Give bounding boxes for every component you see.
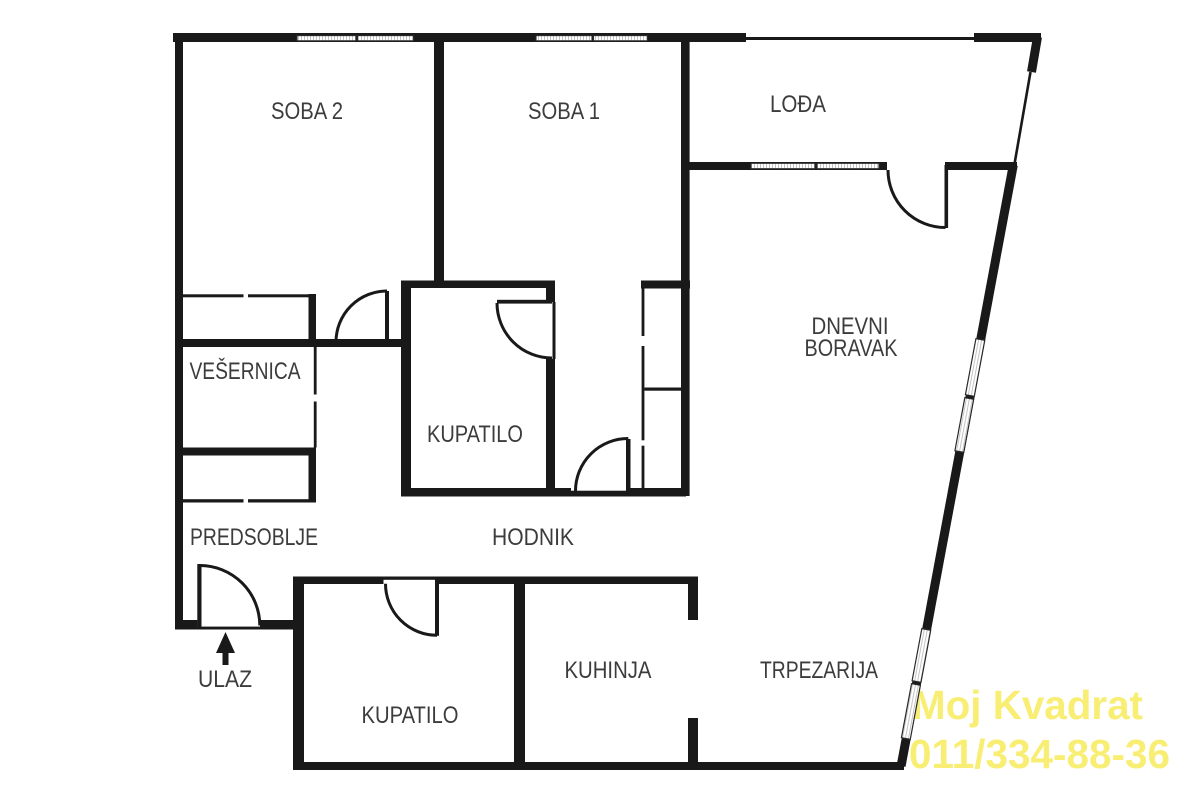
svg-text:SOBA 1: SOBA 1 xyxy=(528,98,600,125)
svg-text:BORAVAK: BORAVAK xyxy=(805,335,898,362)
svg-text:011/334-88-36: 011/334-88-36 xyxy=(909,731,1170,777)
svg-text:LOĐA: LOĐA xyxy=(770,91,826,118)
svg-text:PREDSOBLJE: PREDSOBLJE xyxy=(190,524,318,551)
svg-text:Moj Kvadrat: Moj Kvadrat xyxy=(912,682,1143,728)
svg-text:SOBA 2: SOBA 2 xyxy=(271,98,343,125)
svg-text:TRPEZARIJA: TRPEZARIJA xyxy=(760,657,878,684)
svg-text:KUPATILO: KUPATILO xyxy=(362,702,459,729)
svg-text:HODNIK: HODNIK xyxy=(492,524,574,551)
svg-text:ULAZ: ULAZ xyxy=(198,666,252,693)
svg-text:KUHINJA: KUHINJA xyxy=(565,657,652,684)
svg-text:KUPATILO: KUPATILO xyxy=(427,421,523,448)
svg-text:VEŠERNICA: VEŠERNICA xyxy=(190,357,301,385)
